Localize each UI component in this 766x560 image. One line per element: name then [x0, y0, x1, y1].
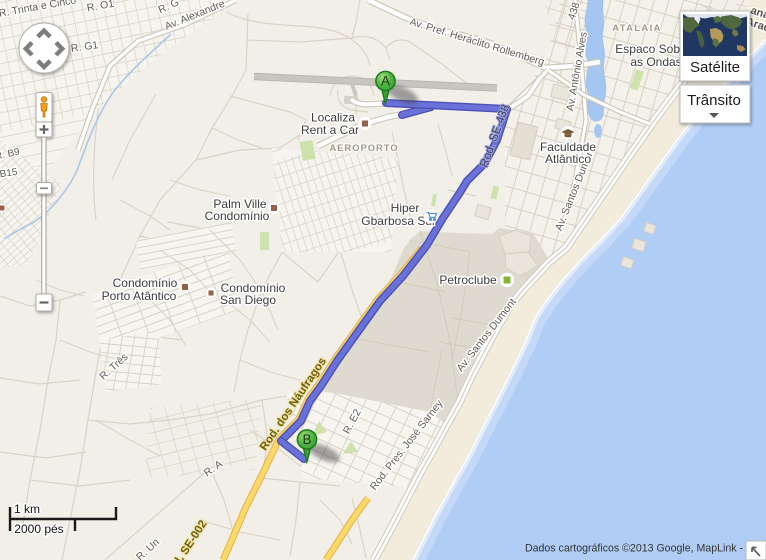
- svg-text:Satélite: Satélite: [690, 59, 740, 76]
- svg-text:Petroclube: Petroclube: [439, 273, 497, 287]
- svg-text:Dados cartográficos ©2013 Goog: Dados cartográficos ©2013 Google, MapLin…: [525, 543, 744, 555]
- svg-text:Condomínio: Condomínio: [205, 209, 270, 223]
- svg-text:2000 pés: 2000 pés: [14, 522, 63, 536]
- svg-text:Atlântico: Atlântico: [545, 152, 591, 166]
- svg-text:B: B: [302, 432, 311, 447]
- svg-text:San Diego: San Diego: [220, 293, 276, 307]
- svg-text:as Ondas: as Ondas: [630, 55, 681, 69]
- svg-text:Hiper: Hiper: [391, 201, 420, 215]
- svg-text:Rent a Car: Rent a Car: [301, 123, 359, 137]
- svg-text:A: A: [381, 74, 390, 89]
- svg-text:Porto Atântico: Porto Atântico: [102, 289, 177, 303]
- svg-text:Condomínio: Condomínio: [113, 276, 178, 290]
- svg-text:1 km: 1 km: [14, 502, 40, 516]
- svg-text:ATALAIA: ATALAIA: [612, 23, 661, 34]
- svg-text:Trânsito: Trânsito: [687, 92, 741, 109]
- svg-text:AEROPORTO: AEROPORTO: [329, 143, 398, 154]
